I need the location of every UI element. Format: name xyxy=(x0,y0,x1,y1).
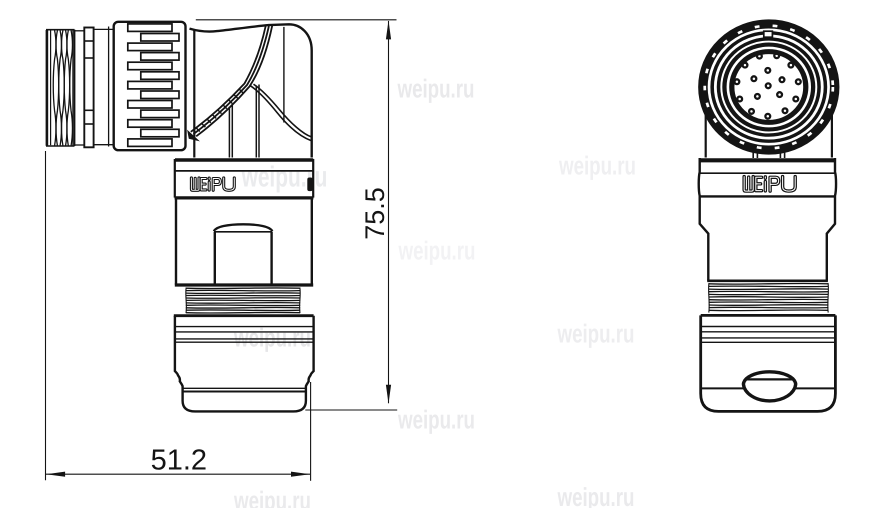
svg-text:weipu.ru: weipu.ru xyxy=(397,405,475,435)
svg-text:weipu.ru: weipu.ru xyxy=(557,482,635,508)
svg-text:weipu.ru: weipu.ru xyxy=(398,236,476,266)
svg-text:weipu.ru: weipu.ru xyxy=(557,319,635,349)
svg-text:weipu.ru: weipu.ru xyxy=(233,486,311,508)
svg-text:weipu.ru: weipu.ru xyxy=(241,162,328,194)
svg-text:weipu.ru: weipu.ru xyxy=(397,74,475,104)
svg-text:weipu.ru: weipu.ru xyxy=(558,151,636,181)
svg-text:75.5: 75.5 xyxy=(360,187,390,240)
svg-text:51.2: 51.2 xyxy=(151,445,207,477)
